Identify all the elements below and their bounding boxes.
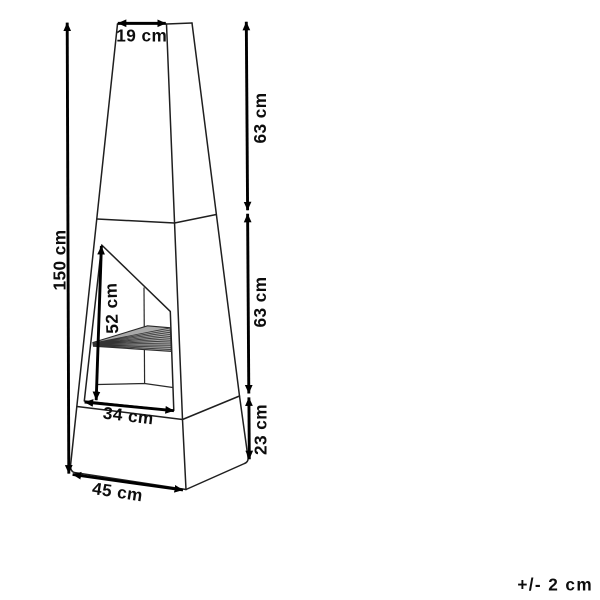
- svg-text:19 cm: 19 cm: [116, 26, 167, 46]
- svg-text:+/- 2 cm: +/- 2 cm: [517, 575, 593, 595]
- svg-text:23 cm: 23 cm: [251, 404, 271, 455]
- svg-text:150 cm: 150 cm: [50, 230, 70, 291]
- svg-text:63 cm: 63 cm: [250, 93, 270, 144]
- svg-text:63 cm: 63 cm: [250, 277, 270, 328]
- svg-text:52 cm: 52 cm: [100, 282, 122, 334]
